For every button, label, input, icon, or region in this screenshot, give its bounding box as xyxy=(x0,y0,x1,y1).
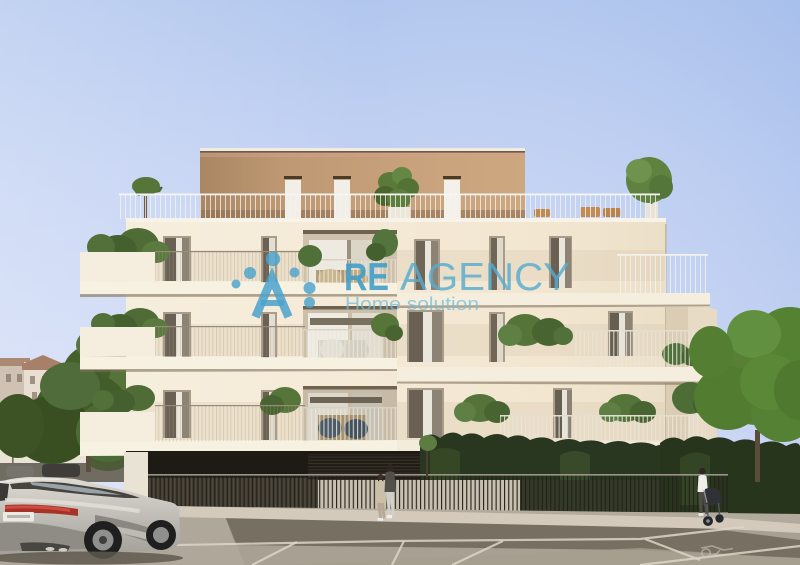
svg-text:Home solution: Home solution xyxy=(345,293,479,314)
